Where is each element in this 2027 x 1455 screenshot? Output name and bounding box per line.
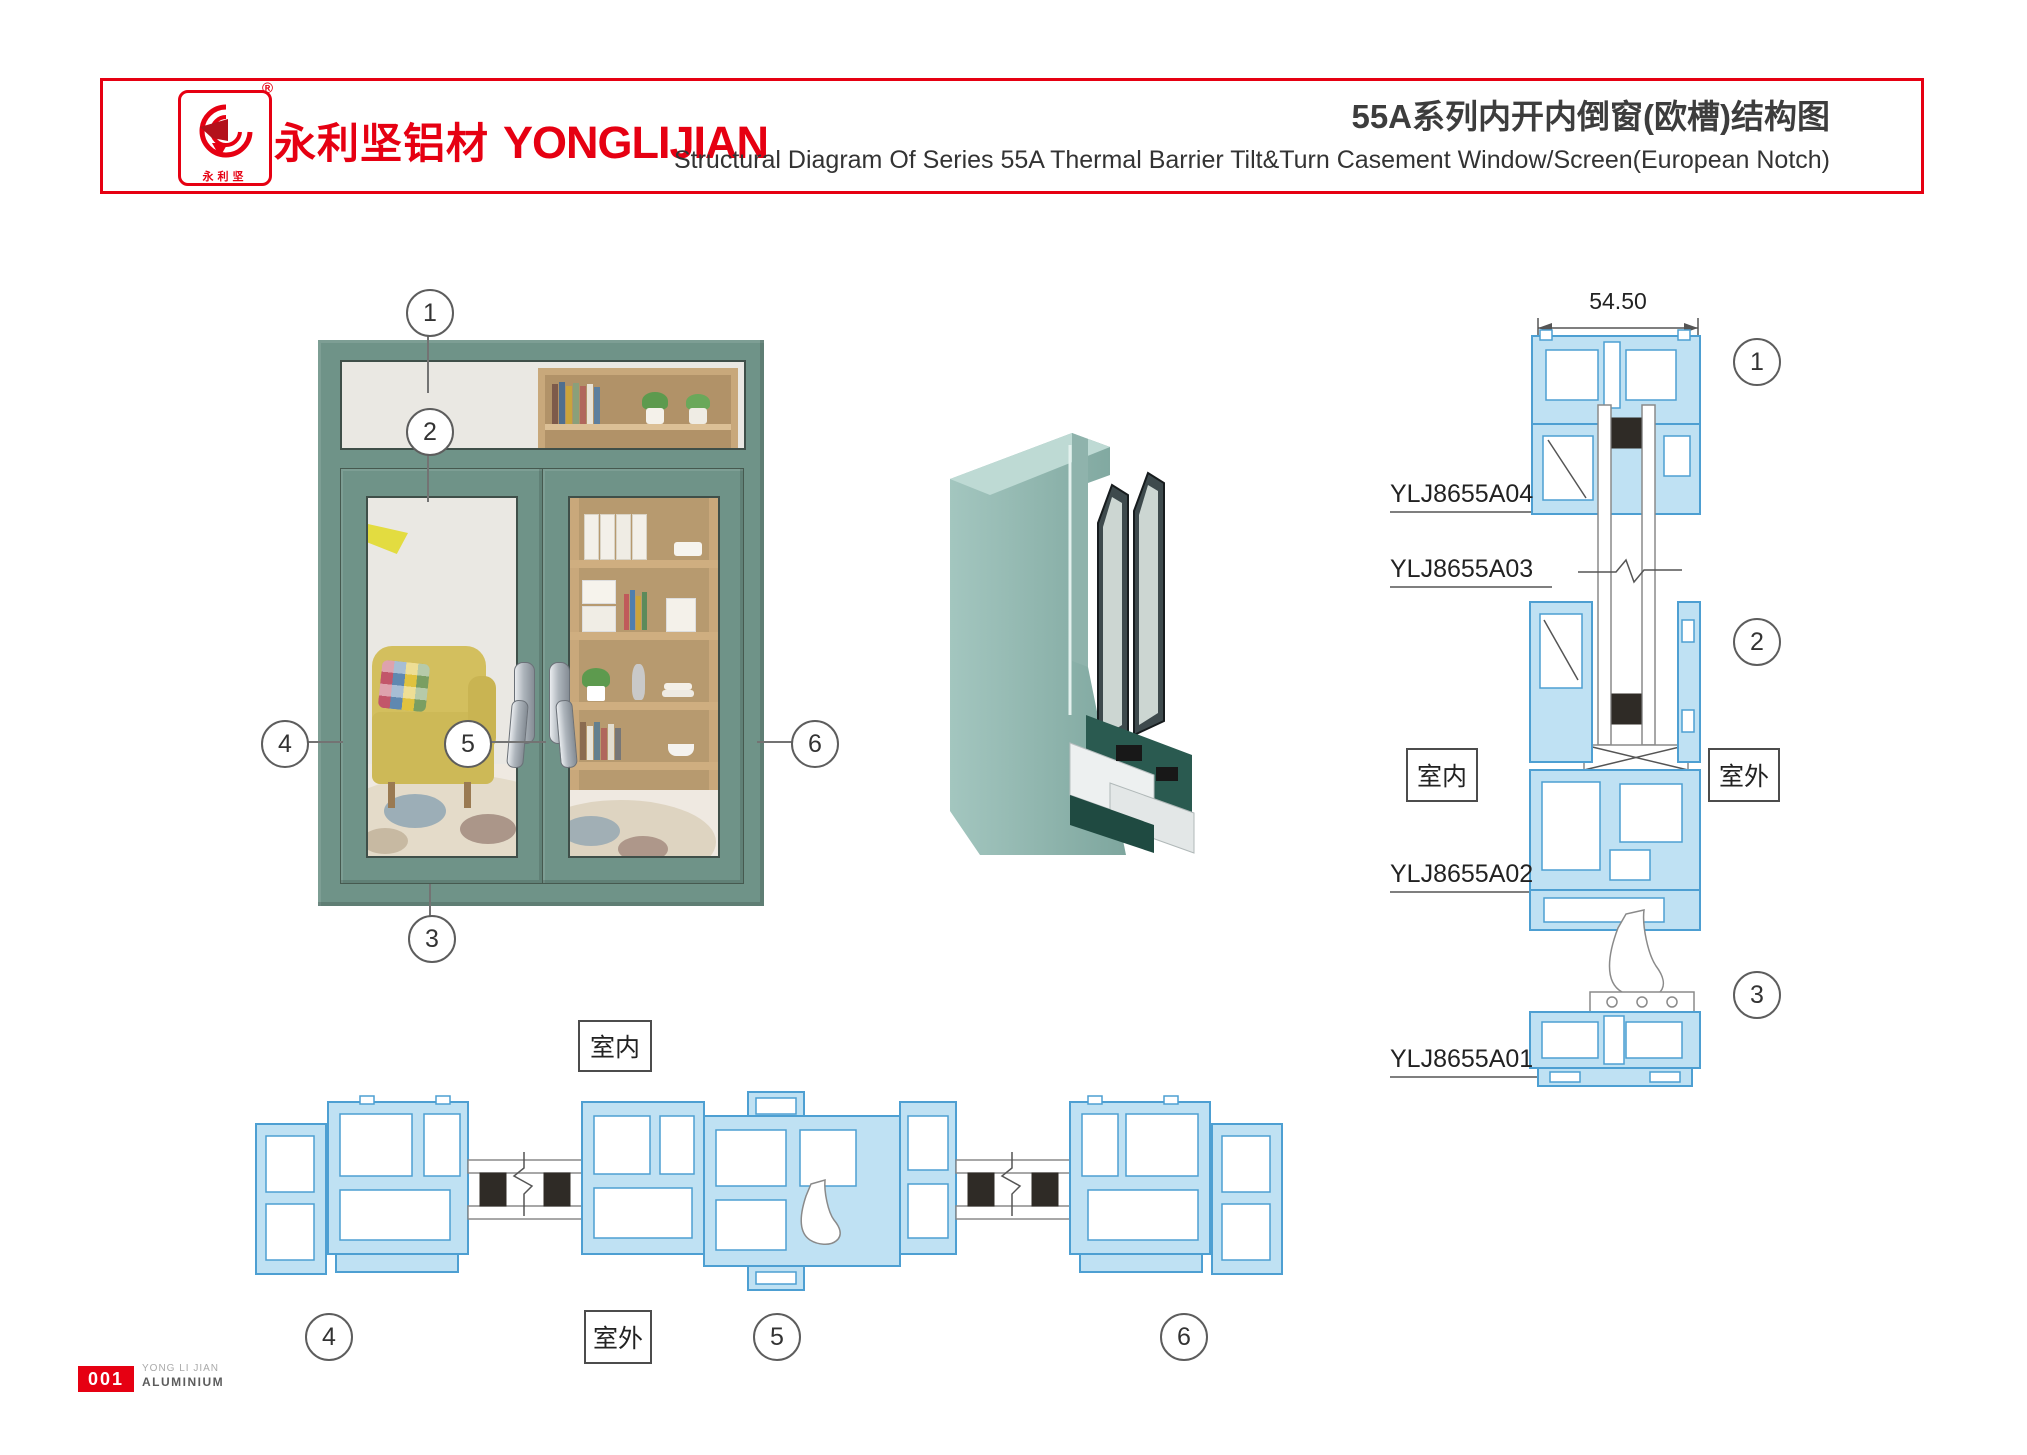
callout-line-5 [488,741,546,743]
section-callout-2-label: 2 [1750,628,1764,657]
page-title-chinese: 55A系列内开内倒窗(欧槽)结构图 [674,90,1830,138]
plan-callout-5: 5 [753,1313,801,1361]
plan-callout-6-label: 6 [1177,1323,1191,1352]
profile-3d-render [920,415,1220,860]
callout-4-label: 4 [278,730,292,759]
plan-section-drawing [240,1080,1300,1295]
callout-line-4 [305,741,343,743]
part-label-ylj8655a03: YLJ8655A03 [1390,555,1533,584]
callout-2: 2 [406,408,454,456]
callout-6: 6 [791,720,839,768]
logo-characters: 永利坚 [178,168,272,184]
plan-callout-5-label: 5 [770,1323,784,1352]
callout-1: 1 [406,289,454,337]
callout-line-6 [757,741,793,743]
callout-line-1 [427,333,429,393]
section-callout-1-label: 1 [1750,348,1764,377]
transom-glass [340,360,746,450]
page-number-badge: 001 [78,1366,134,1392]
part-label-ylj8655a04: YLJ8655A04 [1390,480,1533,509]
section-callout-3-label: 3 [1750,981,1764,1010]
right-sash-glass [568,496,720,858]
outdoor-text: 室外 [1719,757,1769,793]
callout-2-label: 2 [423,418,437,447]
dimension-5450: 54.50 [1538,288,1698,315]
brand-name-chinese: 永利坚铝材 [274,110,489,171]
registered-mark: ® [262,80,273,97]
footer-brand-line1: YONG LI JIAN [142,1363,219,1374]
outdoor-label-plan: 室外 [584,1310,652,1364]
callout-5-label: 5 [461,730,475,759]
callout-5: 5 [444,720,492,768]
callout-3: 3 [408,915,456,963]
outdoor-label-vertical: 室外 [1708,748,1780,802]
callout-4: 4 [261,720,309,768]
logo-swirl-icon [182,99,264,163]
part-label-ylj8655a02: YLJ8655A02 [1390,860,1533,889]
left-sash-glass [366,496,518,858]
callout-line-2 [427,452,429,502]
page-number: 001 [88,1369,124,1390]
callout-3-label: 3 [425,925,439,954]
callout-6-label: 6 [808,730,822,759]
footer-brand-line2: ALUMINIUM [142,1375,224,1389]
part-label-ylj8655a01: YLJ8655A01 [1390,1045,1533,1074]
page-title-english: Structural Diagram Of Series 55A Thermal… [674,146,1830,175]
callout-line-3 [429,884,431,916]
plan-callout-4: 4 [305,1313,353,1361]
section-callout-1: 1 [1733,338,1781,386]
callout-1-label: 1 [423,299,437,328]
plan-callout-4-label: 4 [322,1323,336,1352]
plan-callout-6: 6 [1160,1313,1208,1361]
page-title-block: 55A系列内开内倒窗(欧槽)结构图 Structural Diagram Of … [674,90,1830,175]
section-callout-3: 3 [1733,971,1781,1019]
outdoor-text-plan: 室外 [593,1319,643,1355]
section-callout-2: 2 [1733,618,1781,666]
indoor-label-vertical: 室内 [1406,748,1478,802]
indoor-text-plan: 室内 [590,1028,640,1064]
wall-shelf [538,368,738,448]
indoor-label-plan: 室内 [578,1020,652,1072]
indoor-text: 室内 [1417,757,1467,793]
